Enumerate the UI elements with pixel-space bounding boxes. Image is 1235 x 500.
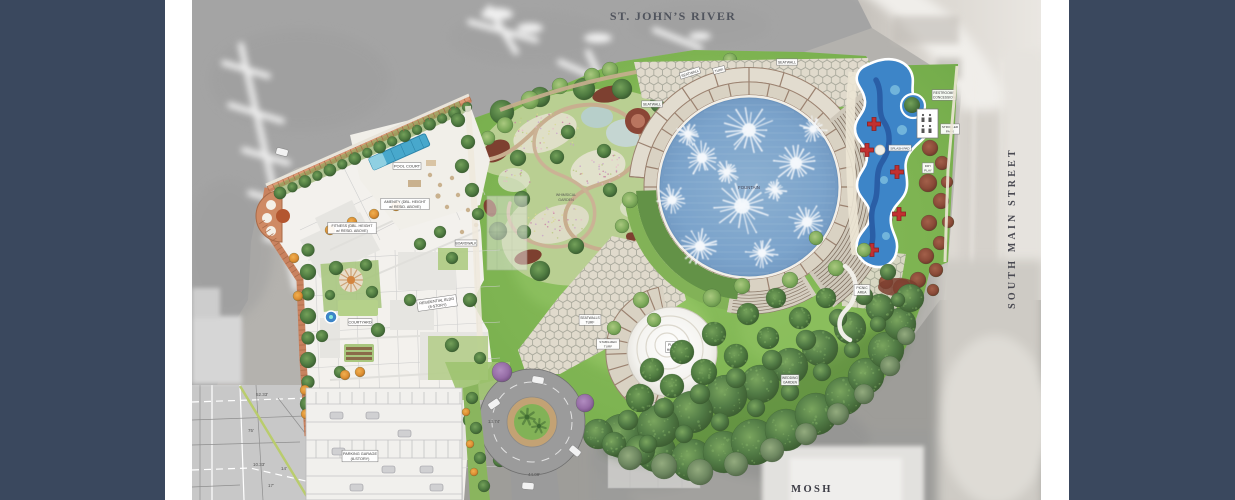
svg-text:POOL COURT: POOL COURT [394, 164, 421, 169]
svg-text:SEATWALL: SEATWALL [643, 103, 661, 107]
svg-text:GARDEN: GARDEN [558, 198, 574, 202]
svg-text:RESTROOMS: RESTROOMS [933, 91, 955, 95]
svg-text:13.74': 13.74' [488, 419, 500, 424]
svg-text:MOSH: MOSH [791, 484, 833, 495]
svg-text:WEDDING: WEDDING [782, 376, 798, 380]
svg-text:(8-STORY): (8-STORY) [351, 457, 371, 461]
svg-text:FOUNTAIN: FOUNTAIN [738, 185, 760, 190]
svg-text:17': 17' [268, 483, 274, 488]
svg-text:w/ RESID. ABOVE): w/ RESID. ABOVE) [336, 229, 368, 233]
svg-text:TURF: TURF [586, 321, 595, 325]
svg-text:WHIMSICAL: WHIMSICAL [556, 193, 576, 197]
svg-text:PLAY: PLAY [924, 169, 932, 173]
svg-text:PICNIC: PICNIC [856, 286, 868, 290]
svg-text:AMENITY (DBL. HEIGHT: AMENITY (DBL. HEIGHT [384, 200, 426, 204]
svg-text:44.08': 44.08' [528, 472, 540, 477]
svg-text:75': 75' [248, 428, 254, 433]
svg-text:SOUTH MAIN STREET: SOUTH MAIN STREET [1007, 147, 1018, 309]
svg-text:ST. JOHN’S RIVER: ST. JOHN’S RIVER [610, 9, 736, 23]
svg-text:FITNESS (DBL. HEIGHT: FITNESS (DBL. HEIGHT [332, 224, 374, 228]
svg-text:GARDEN: GARDEN [783, 381, 798, 385]
svg-text:PARKING GARAGE: PARKING GARAGE [343, 452, 378, 456]
svg-text:w/ RESID. ABOVE): w/ RESID. ABOVE) [389, 205, 421, 209]
svg-text:SEATWALL: SEATWALL [778, 61, 796, 65]
svg-text:SEATWALLS: SEATWALLS [580, 316, 600, 320]
svg-text:52.33': 52.33' [256, 392, 268, 397]
svg-text:10.33': 10.33' [253, 462, 265, 467]
svg-text:CONCESSION: CONCESSION [933, 96, 956, 100]
svg-text:COURTYARD: COURTYARD [348, 321, 371, 325]
svg-text:TURF: TURF [604, 345, 612, 349]
svg-text:AREA: AREA [858, 291, 868, 295]
svg-text:14': 14' [281, 466, 287, 471]
svg-text:BOARDWALK: BOARDWALK [456, 241, 478, 245]
svg-text:SPLASH PAD: SPLASH PAD [890, 146, 910, 150]
